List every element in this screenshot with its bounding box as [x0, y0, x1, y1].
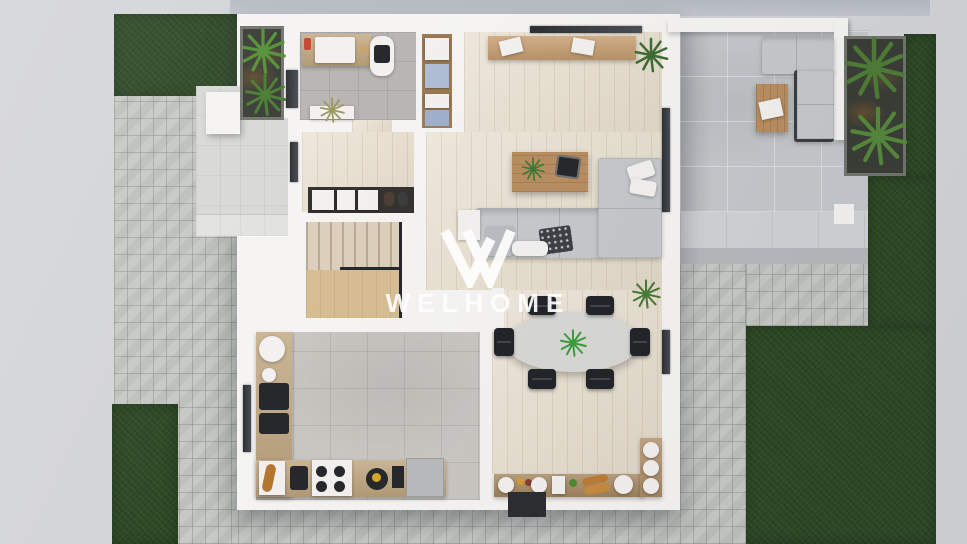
fruit [517, 478, 524, 485]
plate [643, 460, 659, 476]
floor-plan-render: WELHOME [0, 0, 967, 544]
pastry-plate [614, 475, 633, 494]
coffee-maker [290, 466, 308, 490]
terrace-wall-stub [834, 204, 854, 224]
staircase-upper-flight [306, 222, 402, 270]
lawn-top-left [114, 14, 238, 96]
plate [643, 442, 659, 458]
tablet-tray [555, 154, 582, 179]
sideboard-door [312, 190, 334, 210]
lawn-bottom-left [112, 404, 178, 544]
burner [334, 466, 345, 477]
outdoor-sofa-top-arm [762, 36, 834, 74]
burner [316, 466, 327, 477]
dried-plant-icon [318, 96, 346, 124]
kitchen-window [243, 385, 251, 452]
sofa-ottoman [512, 241, 548, 256]
centerpiece-plant-icon [558, 328, 588, 358]
dining-chair [494, 328, 514, 356]
fern-plant-icon [840, 34, 908, 102]
plate [498, 477, 514, 493]
towel-stack [425, 94, 449, 108]
plate [531, 477, 547, 493]
burner [334, 481, 345, 492]
lawn-bottom-right [744, 326, 936, 544]
terrace-step-lower [680, 248, 868, 264]
sideboard-door [337, 190, 355, 210]
towel-stack [425, 38, 449, 60]
palm-plant-icon [242, 72, 288, 118]
outdoor-sofa-right-arm [794, 70, 834, 142]
entrance-door-mat [508, 492, 546, 517]
towel-stack-blue [425, 110, 449, 126]
soap-bottles [304, 38, 311, 50]
corner-plant-icon [632, 36, 670, 74]
paved-terrace-apron [746, 264, 868, 326]
small-appliance [552, 476, 565, 494]
toilet-seat [374, 45, 390, 63]
dining-window [662, 330, 670, 374]
dining-chair [586, 296, 614, 315]
porch-pillar [206, 92, 240, 134]
bathroom-door-threshold [352, 120, 392, 132]
welhome-logo-icon [440, 226, 516, 288]
bath-sink [315, 37, 355, 63]
terrace-parapet-top [668, 18, 848, 32]
vegetable [569, 479, 577, 487]
palm-plant-icon [238, 26, 288, 76]
shoes [384, 192, 394, 206]
dining-chair [528, 369, 556, 389]
plate [643, 478, 659, 494]
towel-stack-blue [425, 64, 449, 88]
dining-chair [586, 369, 614, 389]
table-plant-icon [520, 156, 546, 182]
office-window [530, 26, 642, 33]
burner [316, 481, 327, 492]
dishwasher [406, 458, 444, 497]
watermark-brand-text: WELHOME [368, 288, 588, 319]
knife-block [392, 466, 404, 488]
lawn-right-mid [868, 176, 936, 328]
fruit [372, 473, 381, 482]
cooktop-module [259, 383, 289, 410]
shoes [398, 192, 408, 206]
plate-stack [259, 336, 285, 362]
nook-door [286, 70, 298, 108]
bowl [262, 368, 276, 382]
sideboard-door [358, 190, 378, 210]
porch-door [290, 142, 298, 182]
cooktop-module [259, 413, 289, 434]
stair-handrail [340, 267, 402, 270]
floor-plant-icon [630, 278, 662, 310]
paved-yard-bottom [238, 510, 746, 544]
paved-path-right [680, 264, 746, 544]
entry-porch-step [196, 214, 288, 237]
soap-dish [359, 44, 368, 53]
fern-plant-icon [846, 104, 910, 168]
dining-chair [630, 328, 650, 356]
terrace-sliding-door [662, 108, 670, 212]
